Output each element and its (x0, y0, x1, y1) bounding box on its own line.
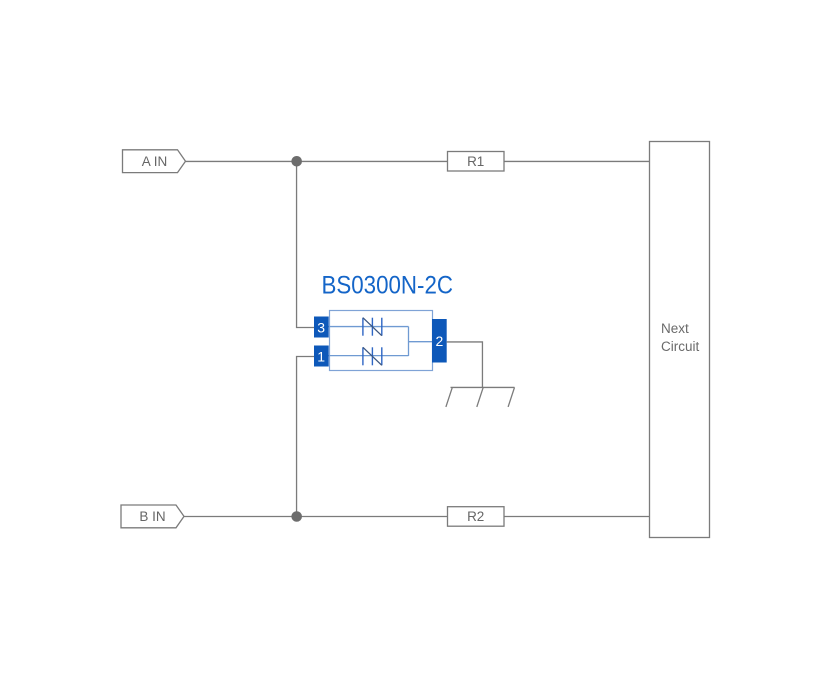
svg-text:Circuit: Circuit (661, 339, 700, 354)
svg-text:1: 1 (317, 348, 325, 364)
svg-text:R2: R2 (467, 509, 484, 524)
svg-text:A IN: A IN (142, 154, 168, 169)
svg-text:R1: R1 (467, 154, 484, 169)
svg-text:Next: Next (661, 321, 689, 336)
svg-text:BS0300N-2C: BS0300N-2C (322, 271, 454, 299)
svg-text:3: 3 (317, 319, 325, 335)
svg-text:B IN: B IN (139, 509, 165, 524)
svg-text:2: 2 (436, 333, 444, 349)
